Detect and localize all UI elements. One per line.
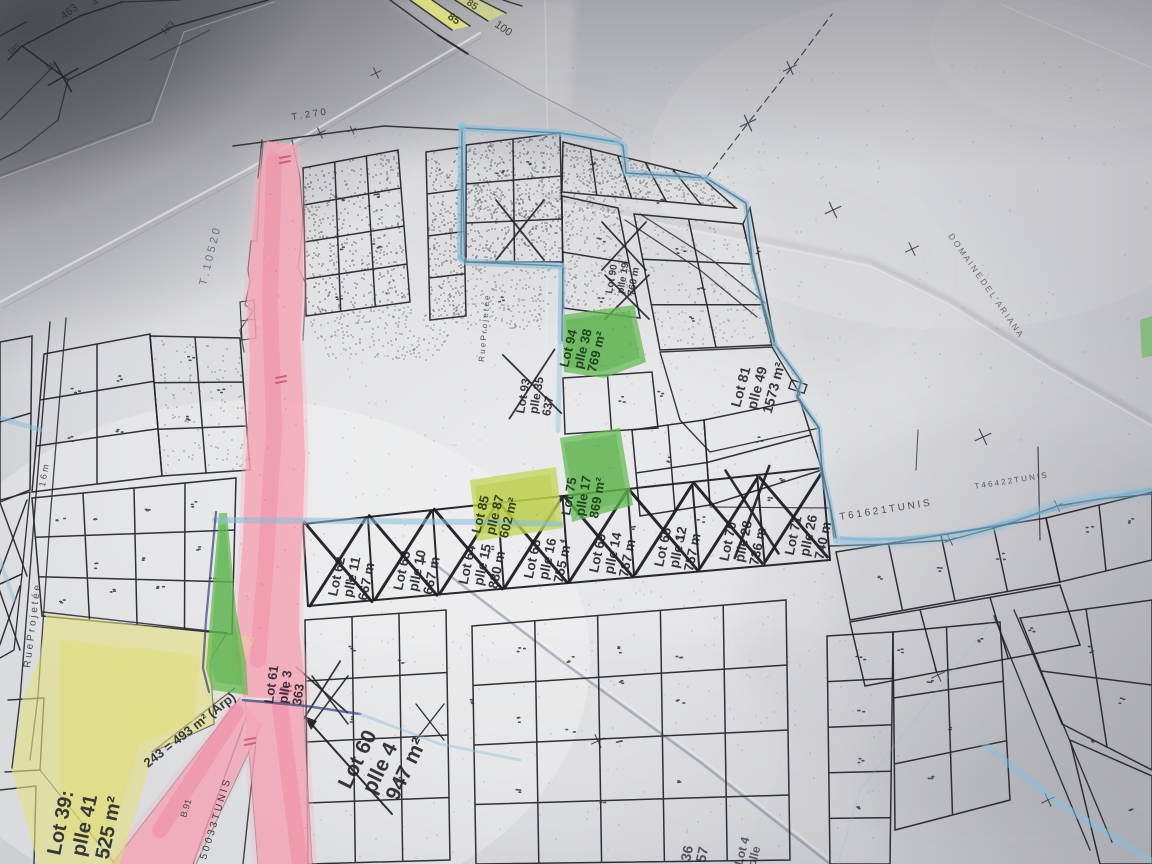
svg-text:363: 363 — [289, 683, 307, 707]
